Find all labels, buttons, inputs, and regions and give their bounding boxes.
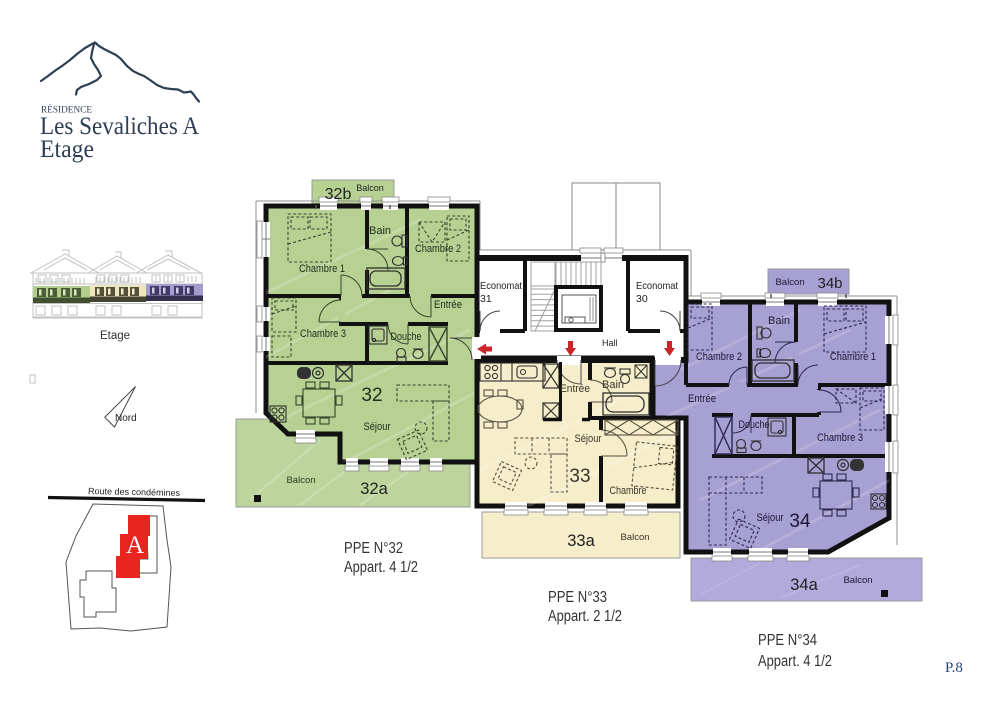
- svg-text:34b: 34b: [817, 275, 842, 292]
- svg-text:Douche: Douche: [739, 419, 770, 431]
- svg-text:34a: 34a: [790, 576, 818, 594]
- svg-text:Séjour: Séjour: [757, 512, 784, 524]
- svg-text:Chambre 3: Chambre 3: [817, 432, 863, 444]
- svg-text:33a: 33a: [567, 532, 595, 550]
- svg-text:Etage: Etage: [100, 330, 130, 342]
- svg-text:Appart. 2 1/2: Appart. 2 1/2: [548, 608, 622, 625]
- svg-text:Economat: Economat: [636, 280, 678, 292]
- svg-text:Chambre 3: Chambre 3: [300, 328, 346, 340]
- svg-text:Entrée: Entrée: [560, 383, 590, 395]
- svg-text:P.8: P.8: [945, 660, 963, 676]
- svg-text:Balcon: Balcon: [356, 183, 384, 193]
- svg-text:Bain: Bain: [768, 315, 790, 327]
- svg-text:Balcon: Balcon: [843, 575, 872, 586]
- svg-text:Appart. 4 1/2: Appart. 4 1/2: [758, 653, 832, 670]
- svg-text:Entrée: Entrée: [434, 299, 462, 311]
- svg-text:Economat: Economat: [480, 280, 522, 292]
- svg-text:Chambre: Chambre: [610, 485, 647, 497]
- svg-text:Douche: Douche: [391, 331, 422, 343]
- svg-text:Nord: Nord: [115, 413, 137, 424]
- svg-text:Balcon: Balcon: [286, 475, 315, 486]
- svg-text:Etage: Etage: [40, 136, 94, 163]
- svg-text:Bain: Bain: [602, 379, 624, 391]
- svg-text:33: 33: [569, 466, 590, 487]
- svg-text:Chambre 2: Chambre 2: [696, 351, 742, 363]
- svg-text:PPE N°34: PPE N°34: [758, 632, 817, 649]
- svg-text:Balcon: Balcon: [775, 277, 804, 288]
- svg-text:PPE N°33: PPE N°33: [548, 589, 607, 606]
- svg-text:32b: 32b: [325, 186, 352, 203]
- svg-text:PPE N°32: PPE N°32: [344, 540, 403, 557]
- svg-text:34: 34: [789, 511, 811, 532]
- svg-text:Route des condémines: Route des condémines: [88, 486, 181, 498]
- svg-text:31: 31: [480, 293, 492, 305]
- svg-text:32: 32: [361, 385, 382, 406]
- svg-text:Chambre 2: Chambre 2: [415, 243, 461, 255]
- svg-text:30: 30: [636, 293, 648, 305]
- svg-text:A: A: [126, 532, 144, 559]
- svg-text:Chambre 1: Chambre 1: [830, 351, 876, 363]
- svg-text:Bain: Bain: [369, 225, 391, 237]
- svg-text:Balcon: Balcon: [620, 532, 649, 543]
- svg-text:Séjour: Séjour: [575, 433, 602, 445]
- svg-text:Hall: Hall: [602, 338, 618, 348]
- svg-text:Entrée: Entrée: [688, 393, 716, 405]
- svg-text:Appart. 4 1/2: Appart. 4 1/2: [344, 559, 418, 576]
- svg-text:32a: 32a: [360, 480, 388, 498]
- svg-text:Séjour: Séjour: [364, 421, 391, 433]
- svg-text:Chambre 1: Chambre 1: [299, 263, 345, 275]
